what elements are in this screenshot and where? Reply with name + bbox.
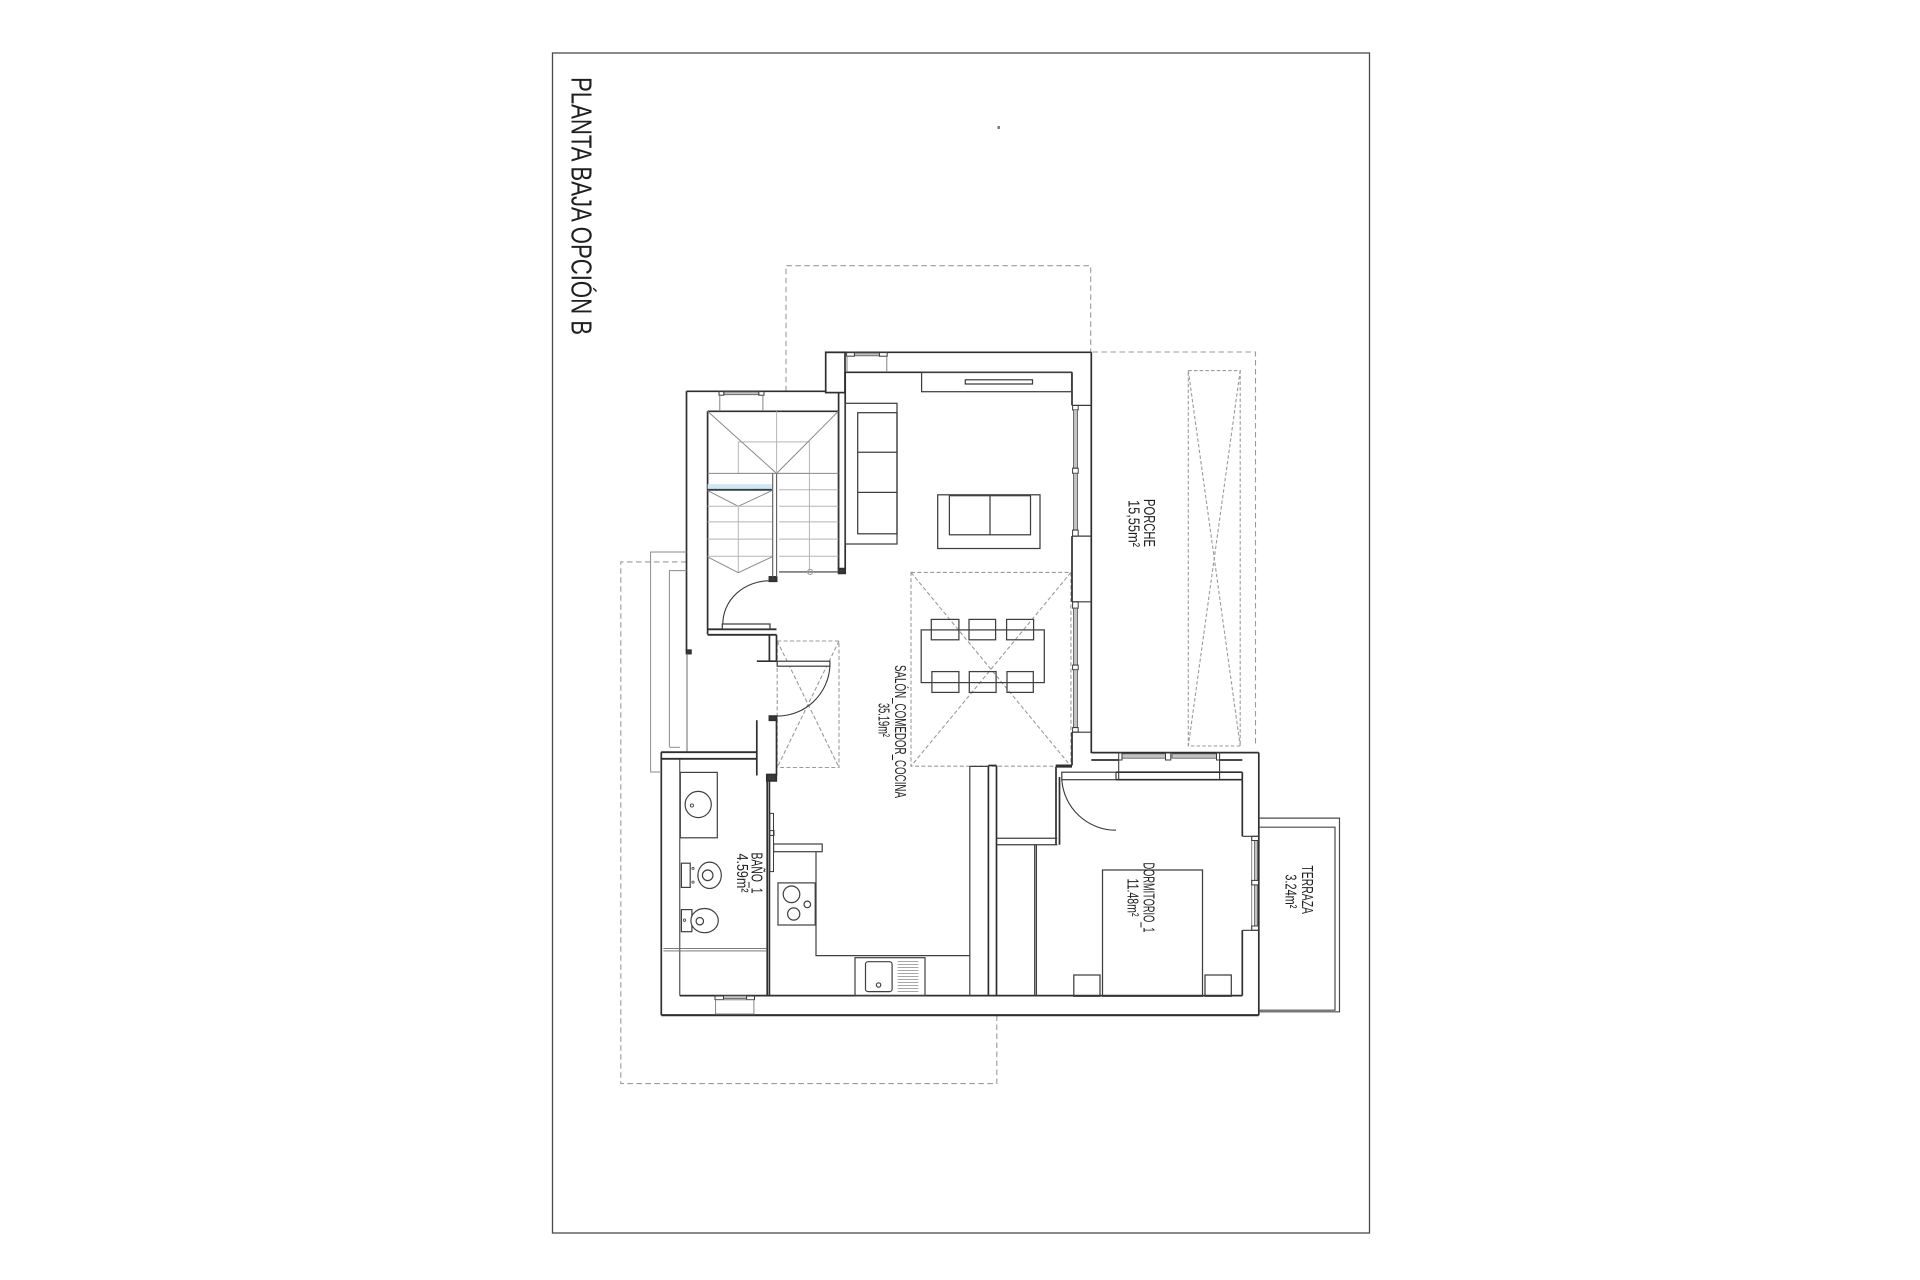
svg-text:PORCHE: PORCHE <box>1140 499 1157 547</box>
svg-text:35.19m²: 35.19m² <box>875 703 892 737</box>
svg-text:PLANTA BAJA OPCIÓN B: PLANTA BAJA OPCIÓN B <box>565 77 598 335</box>
svg-text:DORMITORIO_1: DORMITORIO_1 <box>1140 863 1157 933</box>
svg-text:TERRAZA: TERRAZA <box>1298 865 1315 914</box>
svg-text:11.48m²: 11.48m² <box>1123 879 1140 917</box>
svg-text:SALÓN_COMEDOR_COCINA: SALÓN_COMEDOR_COCINA <box>891 665 910 798</box>
svg-text:15,55m²: 15,55m² <box>1125 500 1142 548</box>
svg-text:3.24m²: 3.24m² <box>1282 874 1299 908</box>
svg-text:4.59m²: 4.59m² <box>733 854 750 894</box>
